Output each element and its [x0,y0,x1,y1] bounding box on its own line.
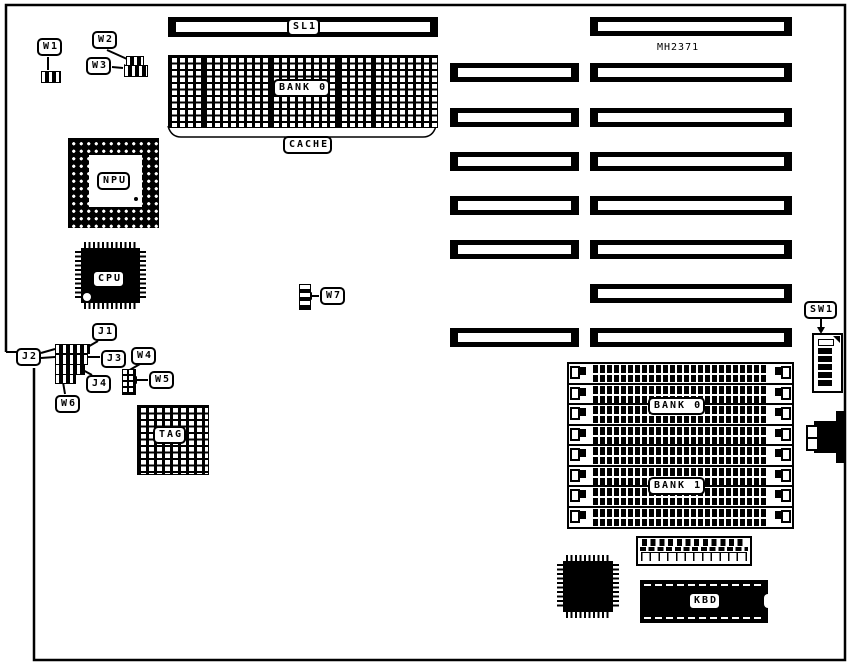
dip-switch-position [818,339,834,346]
jumper-w1 [41,71,61,83]
kbd-chip-pin-row-top [644,584,764,586]
w4-label: W4 [131,347,156,365]
jumper-w7 [299,284,311,310]
kbd-chip-pin-row-bottom [644,617,764,619]
jumper-w3 [124,65,148,77]
dip-switch-position [818,372,832,378]
cache-label: CACHE [283,136,332,154]
io-chip-pins-bottom [566,612,610,618]
din-connector-pin [806,437,819,451]
w7-label: W7 [320,287,345,305]
expansion-slot-long [590,284,792,303]
j4-label: J4 [86,375,111,393]
cache-chip [372,55,438,128]
expansion-slot-long [590,152,792,171]
io-controller-chip [557,555,619,618]
w1-label: W1 [37,38,62,56]
cpu-pins-right [140,251,146,300]
expansion-slot-long [590,108,792,127]
tag-label: TAG [153,426,186,444]
power-connector-bar [640,547,748,551]
cache-bank0-label: BANK 0 [273,79,330,97]
expansion-slot-long [590,328,792,347]
npu-label: NPU [97,172,130,190]
expansion-slot-short [450,328,579,347]
power-connector-holes [641,552,747,561]
expansion-slot-long [590,63,792,82]
simm-bank1-label: BANK 1 [648,477,705,495]
jumper-block-w4-w5 [122,369,136,395]
io-chip-body [563,561,613,612]
simm-socket [567,506,794,529]
expansion-slot-short [450,63,579,82]
cpu-pins-bottom [84,303,137,309]
dip-switch-position [818,364,832,370]
cpu-label: CPU [92,270,125,288]
jumper-row-j1 [55,344,90,354]
motherboard-diagram: SL1 MH2371 BANK 0 CACHE NPU CPU W1 W2 W3… [0,0,852,669]
kbd-chip-notch [764,594,768,608]
kbd-label: KBD [688,592,721,610]
power-connector-pins [642,539,746,546]
simm-bank0-label: BANK 0 [648,397,705,415]
simm-socket [567,444,794,467]
expansion-slot-long [590,17,792,36]
sl1-label: SL1 [287,18,320,36]
cache-chip [338,55,373,128]
j3-label: J3 [101,350,126,368]
simm-socket [567,362,794,385]
dip-switch-position [818,356,832,362]
power-connector [636,536,752,566]
expansion-slot-short [450,240,579,259]
expansion-slot-short [450,108,579,127]
expansion-slot-long [590,240,792,259]
cpu-pin1-dot [83,293,91,301]
cache-chip [203,55,270,128]
j1-label: J1 [92,323,117,341]
cache-chip [168,55,203,128]
model-text: MH2371 [657,42,699,53]
jumper-row-w6 [55,374,76,384]
npu-pin1-dot [134,197,138,201]
io-chip-pins-right [613,564,619,609]
dip-switch-sw1 [812,333,843,393]
dip-switch-ear [833,336,840,343]
dip-switch-position [818,348,832,354]
w5-label: W5 [149,371,174,389]
expansion-slot-short [450,196,579,215]
dip-switch-position [818,380,832,386]
sw1-label: SW1 [804,301,837,319]
expansion-slot-long [590,196,792,215]
w2-label: W2 [92,31,117,49]
w6-label: W6 [55,395,80,413]
expansion-slot-short [450,152,579,171]
j2-label: J2 [16,348,41,366]
w3-label: W3 [86,57,111,75]
